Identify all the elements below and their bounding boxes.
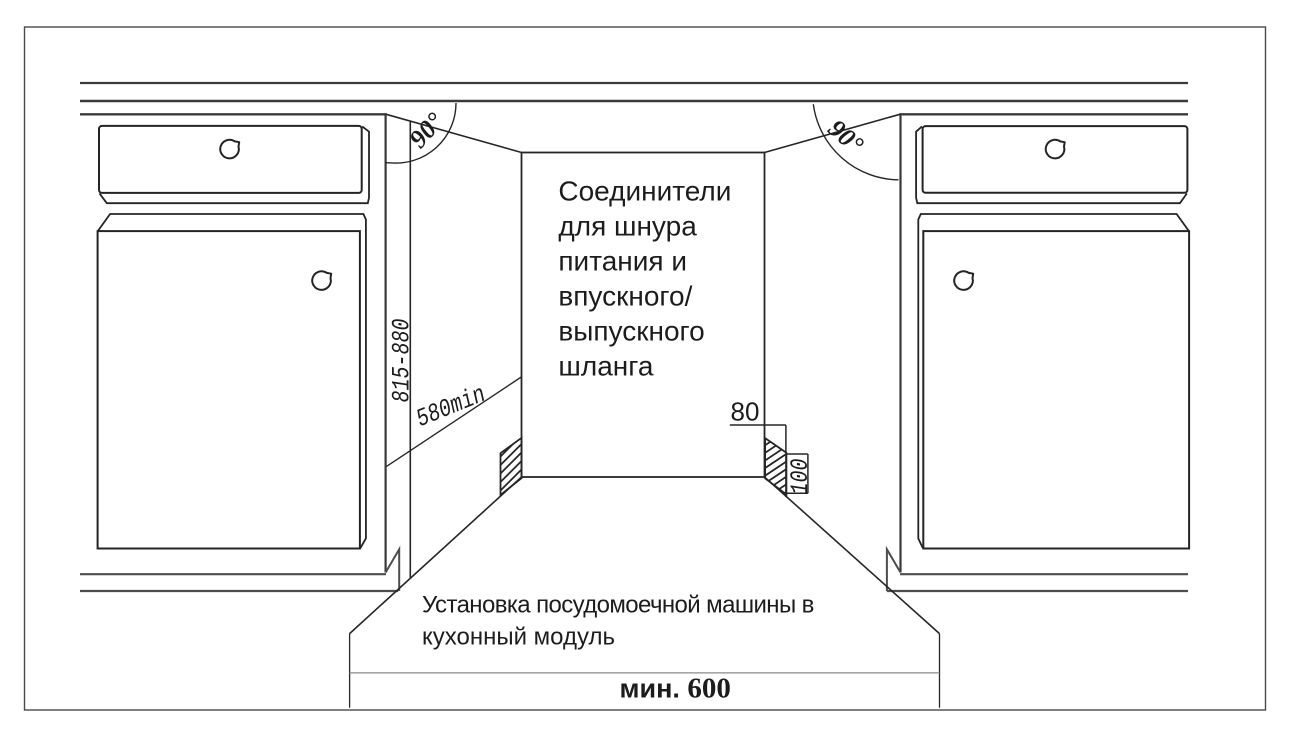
svg-text:Установка посудомоечной машины: Установка посудомоечной машины в xyxy=(422,592,814,619)
svg-text:питания и: питания и xyxy=(558,246,687,277)
svg-text:шланга: шланга xyxy=(558,351,653,382)
svg-text:Соединители: Соединители xyxy=(558,176,731,207)
svg-text:кухонный модуль: кухонный модуль xyxy=(422,624,615,651)
svg-text:80: 80 xyxy=(731,397,760,427)
svg-text:100: 100 xyxy=(786,459,815,495)
svg-text:815-880: 815-880 xyxy=(387,319,416,403)
svg-text:для шнура: для шнура xyxy=(558,211,697,242)
svg-text:выпускного: выпускного xyxy=(558,316,704,347)
svg-text:впускного/: впускного/ xyxy=(558,281,692,312)
svg-text:мин. 600: мин. 600 xyxy=(620,673,731,705)
